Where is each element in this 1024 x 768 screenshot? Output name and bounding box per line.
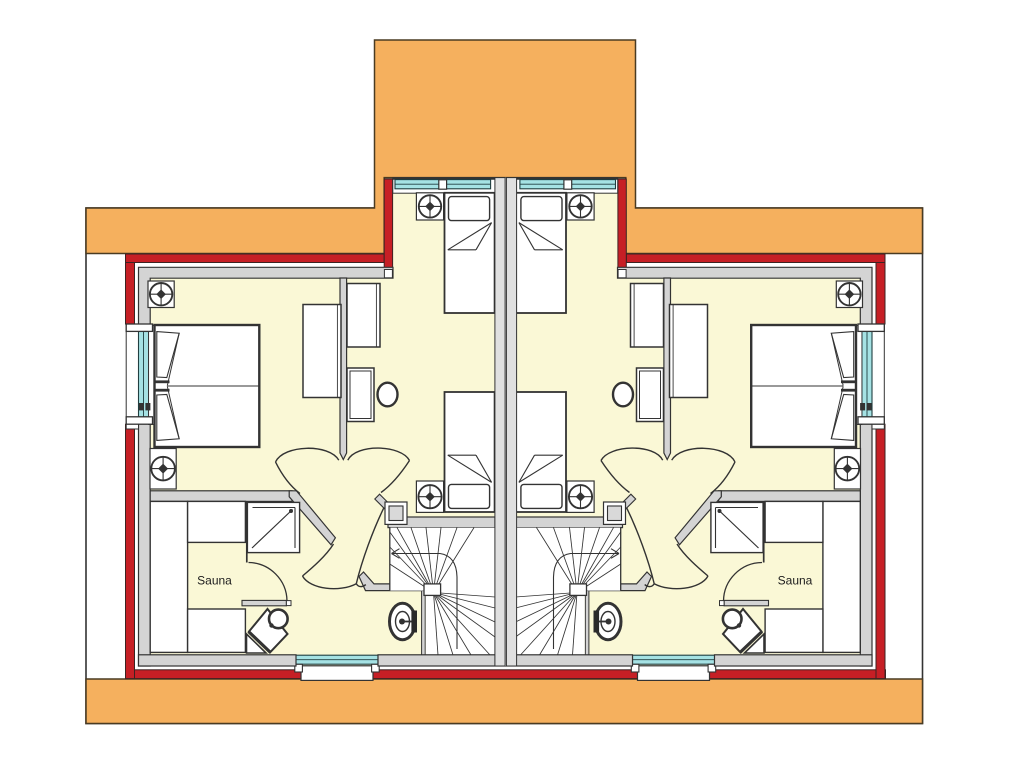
svg-text:Sauna: Sauna: [778, 574, 813, 588]
svg-text:Sauna: Sauna: [197, 574, 232, 588]
